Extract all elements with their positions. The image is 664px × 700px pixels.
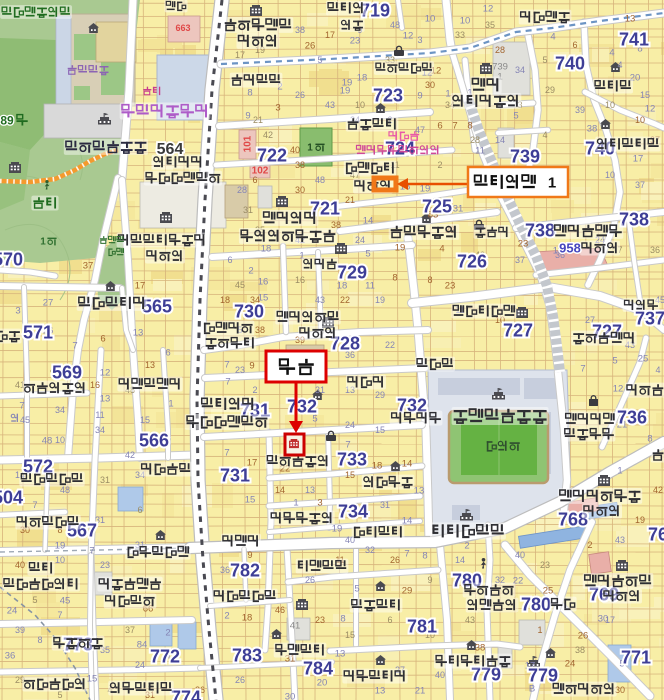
svg-text:76: 76 (648, 525, 664, 545)
svg-text:6: 6 (252, 175, 257, 185)
svg-text:33: 33 (455, 30, 465, 40)
svg-text:21: 21 (253, 115, 263, 125)
svg-text:14: 14 (455, 555, 465, 565)
svg-text:22: 22 (340, 295, 350, 305)
svg-text:10: 10 (605, 170, 615, 180)
svg-text:13: 13 (100, 393, 111, 404)
svg-text:31: 31 (453, 203, 464, 214)
svg-text:48: 48 (390, 20, 400, 30)
svg-text:8: 8 (37, 635, 42, 645)
svg-text:48: 48 (42, 435, 53, 446)
svg-text:42: 42 (125, 450, 135, 460)
svg-text:29: 29 (375, 390, 385, 400)
svg-text:26: 26 (305, 575, 315, 585)
svg-text:34: 34 (95, 425, 105, 435)
svg-text:28: 28 (495, 45, 505, 55)
svg-text:23: 23 (350, 35, 361, 46)
svg-text:29: 29 (402, 585, 413, 596)
svg-text:739: 739 (510, 147, 540, 167)
svg-text:18: 18 (357, 72, 368, 83)
svg-text:17: 17 (235, 50, 245, 60)
svg-text:17: 17 (605, 615, 615, 625)
svg-text:15: 15 (640, 90, 650, 100)
svg-text:24: 24 (345, 420, 355, 430)
svg-text:15: 15 (345, 630, 355, 640)
svg-text:26: 26 (578, 630, 589, 641)
svg-text:19: 19 (395, 242, 406, 253)
svg-text:8: 8 (422, 550, 427, 561)
svg-text:6: 6 (437, 120, 442, 131)
svg-text:5: 5 (542, 55, 547, 65)
svg-text:6: 6 (165, 347, 170, 358)
svg-text:8: 8 (467, 120, 472, 131)
svg-text:32: 32 (365, 545, 375, 555)
svg-text:18: 18 (261, 243, 272, 254)
svg-text:26: 26 (390, 555, 400, 565)
svg-text:15: 15 (140, 415, 150, 425)
svg-text:784: 784 (303, 659, 333, 679)
svg-text:17: 17 (325, 30, 335, 40)
svg-text:10: 10 (425, 13, 436, 24)
svg-text:7: 7 (19, 400, 24, 411)
svg-text:10: 10 (55, 555, 65, 565)
svg-text:19: 19 (55, 540, 66, 551)
svg-text:29: 29 (545, 85, 555, 95)
svg-text:17: 17 (633, 153, 644, 164)
svg-text:41: 41 (290, 620, 301, 631)
svg-text:781: 781 (407, 617, 437, 637)
svg-text:13: 13 (625, 13, 636, 24)
svg-text:26: 26 (295, 90, 305, 100)
svg-text:19: 19 (342, 77, 353, 88)
svg-text:23: 23 (100, 560, 110, 570)
svg-text:1: 1 (445, 88, 450, 99)
svg-text:6: 6 (100, 333, 105, 344)
svg-text:24: 24 (565, 658, 576, 669)
svg-text:18: 18 (220, 295, 230, 305)
svg-text:6: 6 (572, 40, 577, 50)
svg-text:740: 740 (555, 54, 585, 74)
svg-text:5: 5 (57, 690, 62, 700)
svg-text:38: 38 (295, 25, 305, 35)
svg-text:45: 45 (235, 280, 245, 290)
svg-text:17: 17 (135, 280, 146, 291)
svg-text:16: 16 (295, 275, 305, 285)
svg-text:726: 726 (457, 252, 487, 272)
svg-text:504: 504 (0, 488, 23, 508)
svg-text:15: 15 (245, 494, 256, 505)
svg-text:7: 7 (224, 359, 229, 370)
svg-text:13: 13 (375, 685, 386, 696)
svg-text:14: 14 (402, 515, 413, 526)
svg-text:1: 1 (617, 465, 622, 476)
svg-text:724: 724 (385, 139, 415, 159)
svg-text:727: 727 (503, 321, 533, 341)
svg-text:5: 5 (354, 583, 359, 594)
svg-text:43: 43 (325, 100, 335, 110)
svg-text:736: 736 (617, 408, 647, 428)
svg-text:22: 22 (385, 340, 395, 350)
svg-text:39: 39 (575, 105, 585, 115)
svg-text:37: 37 (635, 180, 645, 190)
svg-text:8: 8 (392, 272, 397, 283)
svg-text:101: 101 (243, 135, 254, 152)
svg-text:12: 12 (403, 30, 414, 41)
svg-text:723: 723 (373, 86, 403, 106)
svg-text:7: 7 (72, 340, 77, 351)
svg-text:6: 6 (387, 615, 392, 625)
svg-text:1: 1 (307, 143, 313, 154)
svg-text:43: 43 (465, 615, 475, 625)
svg-text:39: 39 (15, 625, 25, 635)
svg-text:9: 9 (245, 110, 250, 121)
svg-text:10: 10 (635, 115, 645, 125)
svg-text:6: 6 (137, 505, 142, 515)
svg-text:28: 28 (237, 185, 247, 195)
svg-text:30: 30 (295, 185, 305, 195)
svg-text:30: 30 (425, 80, 435, 90)
svg-text:15: 15 (345, 470, 355, 480)
svg-text:2: 2 (224, 610, 229, 621)
svg-text:12: 12 (483, 3, 494, 14)
svg-text:722: 722 (257, 146, 287, 166)
svg-text:566: 566 (139, 431, 169, 451)
svg-text:3: 3 (275, 102, 280, 113)
svg-text:37: 37 (83, 260, 94, 271)
svg-text:772: 772 (150, 647, 180, 667)
svg-text:25: 25 (638, 353, 649, 364)
svg-text:13: 13 (133, 327, 144, 338)
svg-text:43: 43 (615, 535, 625, 545)
svg-text:14: 14 (402, 458, 413, 469)
svg-text:37: 37 (125, 625, 135, 635)
svg-text:38: 38 (475, 642, 486, 653)
svg-text:2: 2 (464, 540, 469, 551)
svg-text:34: 34 (55, 405, 65, 415)
svg-text:16: 16 (258, 276, 269, 287)
svg-text:12: 12 (645, 103, 656, 114)
svg-text:729: 729 (337, 263, 367, 283)
svg-text:31: 31 (315, 385, 325, 395)
svg-text:31: 31 (380, 500, 390, 510)
svg-text:771: 771 (621, 648, 651, 668)
svg-text:5: 5 (612, 355, 617, 366)
svg-text:5: 5 (365, 248, 370, 259)
svg-text:11: 11 (475, 145, 485, 156)
svg-text:8: 8 (340, 613, 345, 624)
svg-text:9: 9 (417, 90, 422, 101)
svg-text:7: 7 (89, 545, 94, 556)
svg-text:741: 741 (619, 30, 649, 50)
svg-text:738: 738 (525, 221, 555, 241)
svg-text:7: 7 (225, 376, 230, 387)
svg-text:4: 4 (550, 31, 555, 42)
svg-text:23: 23 (315, 615, 325, 625)
svg-text:36: 36 (650, 245, 660, 255)
svg-text:21: 21 (345, 195, 355, 205)
svg-text:36: 36 (5, 650, 16, 661)
svg-text:7: 7 (224, 447, 229, 458)
svg-text:11: 11 (95, 410, 104, 420)
svg-text:40: 40 (435, 670, 445, 680)
svg-text:7: 7 (452, 120, 457, 131)
svg-text:783: 783 (232, 646, 262, 666)
svg-text:4: 4 (609, 47, 614, 58)
svg-text:14: 14 (275, 485, 285, 495)
svg-text:40: 40 (15, 560, 25, 570)
svg-text:38: 38 (295, 160, 305, 170)
svg-text:569: 569 (52, 363, 82, 383)
svg-text:3: 3 (417, 35, 422, 45)
svg-text:20: 20 (317, 677, 328, 688)
svg-text:5: 5 (513, 110, 518, 121)
svg-text:84: 84 (137, 639, 148, 650)
svg-text:738: 738 (619, 210, 649, 230)
svg-text:733: 733 (337, 450, 367, 470)
svg-text:15: 15 (87, 673, 98, 684)
svg-text:2: 2 (165, 627, 170, 638)
svg-text:1: 1 (168, 398, 173, 409)
svg-text:570: 570 (0, 250, 23, 270)
svg-text:27: 27 (43, 297, 54, 308)
svg-text:3: 3 (317, 497, 322, 508)
svg-text:2: 2 (587, 540, 592, 550)
svg-text:14: 14 (495, 135, 505, 145)
svg-text:958: 958 (559, 241, 581, 256)
svg-text:34: 34 (515, 65, 525, 75)
svg-text:31: 31 (243, 205, 253, 215)
svg-text:1: 1 (293, 497, 298, 508)
svg-text:36: 36 (220, 565, 230, 575)
svg-text:46: 46 (275, 605, 285, 615)
svg-text:45: 45 (60, 595, 71, 606)
svg-text:38: 38 (587, 123, 598, 134)
svg-text:28: 28 (470, 135, 480, 145)
svg-text:7: 7 (32, 500, 37, 510)
svg-text:1: 1 (548, 174, 556, 191)
svg-text:8: 8 (647, 433, 652, 444)
svg-text:663: 663 (175, 23, 190, 33)
svg-text:19: 19 (635, 515, 645, 525)
svg-text:8: 8 (427, 275, 432, 285)
svg-text:12: 12 (613, 383, 624, 394)
svg-text:13: 13 (414, 485, 425, 496)
svg-text:42: 42 (653, 485, 663, 495)
svg-text:1: 1 (40, 237, 46, 248)
svg-text:40: 40 (515, 550, 525, 560)
svg-text:10: 10 (55, 435, 65, 445)
svg-text:47: 47 (415, 125, 425, 135)
svg-text:48: 48 (315, 175, 325, 185)
svg-text:23: 23 (540, 560, 550, 570)
svg-text:42: 42 (263, 130, 273, 140)
svg-text:6: 6 (227, 255, 232, 265)
svg-text:26: 26 (305, 40, 316, 51)
svg-text:40: 40 (290, 145, 300, 155)
svg-text:102: 102 (252, 166, 269, 177)
svg-text:571: 571 (23, 323, 53, 343)
svg-text:4: 4 (617, 60, 622, 70)
svg-text:10: 10 (460, 15, 471, 26)
svg-text:3: 3 (15, 305, 20, 316)
svg-text:14: 14 (363, 215, 374, 226)
svg-text:7: 7 (580, 363, 585, 374)
svg-text:8: 8 (247, 87, 252, 98)
svg-text:4: 4 (655, 365, 660, 375)
svg-text:782: 782 (230, 561, 260, 581)
svg-text:9: 9 (247, 550, 252, 560)
svg-text:23: 23 (235, 365, 245, 375)
svg-text:18: 18 (242, 612, 253, 623)
svg-text:734: 734 (338, 502, 368, 522)
svg-text:1: 1 (537, 625, 542, 635)
svg-text:23: 23 (445, 280, 456, 291)
svg-text:21: 21 (415, 685, 426, 696)
svg-text:24: 24 (135, 660, 145, 670)
svg-text:24: 24 (355, 235, 365, 245)
svg-text:5: 5 (32, 595, 37, 605)
svg-text:730: 730 (234, 302, 264, 322)
svg-text:780: 780 (521, 595, 551, 615)
svg-text:731: 731 (220, 466, 250, 486)
svg-text:19: 19 (375, 295, 385, 305)
svg-text:732: 732 (287, 397, 317, 417)
svg-text:38: 38 (255, 325, 265, 335)
svg-text:38: 38 (575, 645, 585, 655)
svg-text:2: 2 (252, 385, 257, 395)
svg-text:15: 15 (375, 425, 385, 435)
svg-text:43: 43 (315, 295, 325, 305)
svg-text:26: 26 (235, 675, 245, 685)
svg-text:774: 774 (171, 688, 201, 700)
svg-text:48: 48 (60, 485, 70, 495)
svg-text:2: 2 (248, 265, 253, 276)
svg-text:16: 16 (90, 380, 100, 390)
svg-text:30: 30 (285, 691, 296, 700)
svg-text:4: 4 (542, 130, 547, 140)
svg-text:725: 725 (422, 197, 452, 217)
svg-text:24: 24 (7, 605, 18, 616)
svg-text:31: 31 (100, 475, 110, 485)
svg-text:18: 18 (372, 460, 383, 471)
svg-text:10: 10 (355, 100, 365, 110)
svg-text:45: 45 (20, 415, 30, 425)
svg-text:13: 13 (305, 485, 315, 495)
svg-text:2: 2 (437, 160, 442, 170)
svg-text:13: 13 (145, 360, 155, 370)
svg-text:89: 89 (0, 113, 14, 127)
svg-text:9: 9 (427, 575, 432, 585)
svg-text:35: 35 (485, 20, 495, 30)
svg-text:9: 9 (249, 360, 254, 371)
svg-text:7: 7 (57, 610, 62, 620)
svg-text:7: 7 (404, 548, 409, 559)
svg-text:13: 13 (335, 648, 346, 659)
svg-text:10: 10 (605, 100, 615, 110)
svg-text:12: 12 (100, 367, 111, 378)
svg-text:5: 5 (317, 55, 322, 65)
svg-text:4: 4 (439, 243, 444, 254)
svg-text:37: 37 (515, 255, 525, 265)
